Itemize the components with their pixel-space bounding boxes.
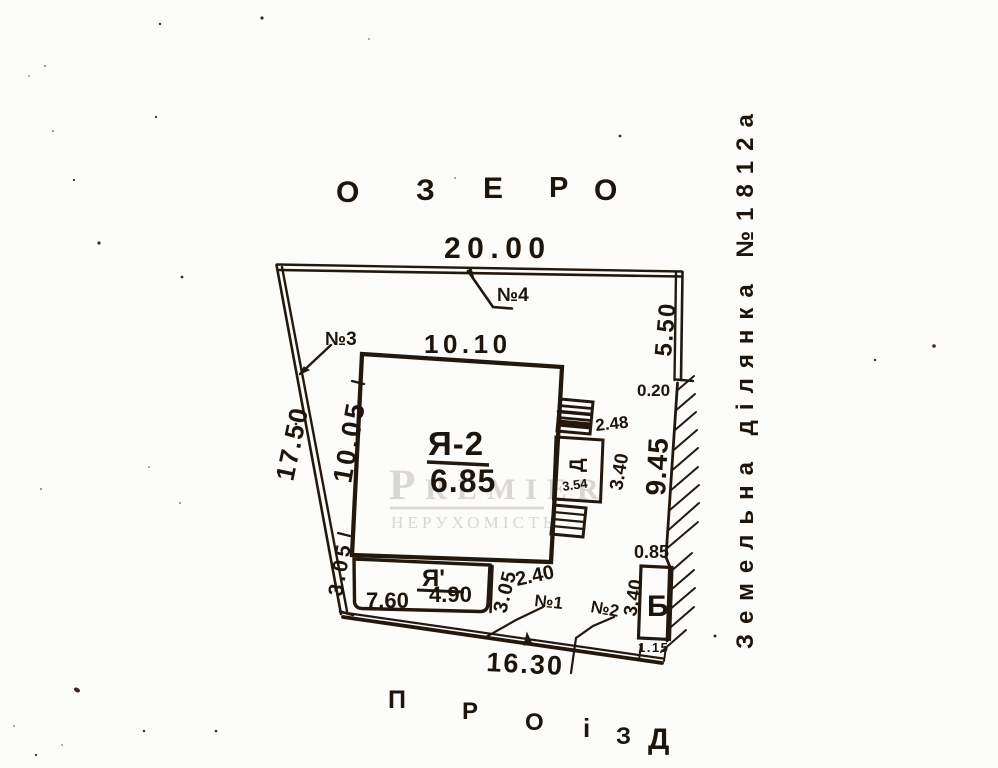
svg-text:Б: Б (647, 590, 669, 623)
svg-text:№4: №4 (497, 285, 529, 306)
svg-text:Р: Р (549, 172, 568, 204)
svg-text:Я-2: Я-2 (428, 425, 484, 462)
svg-text:7.60: 7.60 (366, 588, 409, 613)
svg-text:6.85: 6.85 (430, 463, 496, 499)
svg-text:16.30: 16.30 (486, 647, 565, 681)
svg-text:9.45: 9.45 (640, 436, 674, 496)
svg-text:Е: Е (483, 172, 503, 205)
svg-text:О: О (525, 709, 544, 736)
svg-text:2.48: 2.48 (594, 413, 629, 435)
svg-text:Д: Д (567, 458, 588, 472)
svg-text:П: П (388, 686, 406, 714)
svg-text:Р: Р (462, 698, 478, 725)
svg-text:З: З (616, 723, 631, 750)
svg-text:Земельна ділянка №1812а: Земельна ділянка №1812а (732, 104, 759, 649)
svg-text:4.90: 4.90 (429, 582, 472, 607)
svg-text:1.15: 1.15 (638, 640, 669, 655)
svg-text:О: О (336, 176, 359, 209)
svg-text:№3: №3 (325, 329, 357, 350)
svg-text:Д: Д (648, 723, 669, 756)
svg-text:5.50: 5.50 (650, 301, 682, 358)
svg-text:0.20: 0.20 (637, 381, 670, 400)
svg-text:№1: №1 (534, 591, 564, 613)
svg-text:20.00: 20.00 (444, 232, 552, 265)
svg-text:0.85: 0.85 (634, 542, 669, 562)
svg-text:НЕРУХОМІСТЬ: НЕРУХОМІСТЬ (391, 513, 557, 532)
svg-text:О: О (594, 174, 617, 207)
svg-text:10.10: 10.10 (424, 329, 512, 359)
svg-text:і: і (583, 713, 590, 743)
svg-text:З: З (416, 174, 435, 207)
